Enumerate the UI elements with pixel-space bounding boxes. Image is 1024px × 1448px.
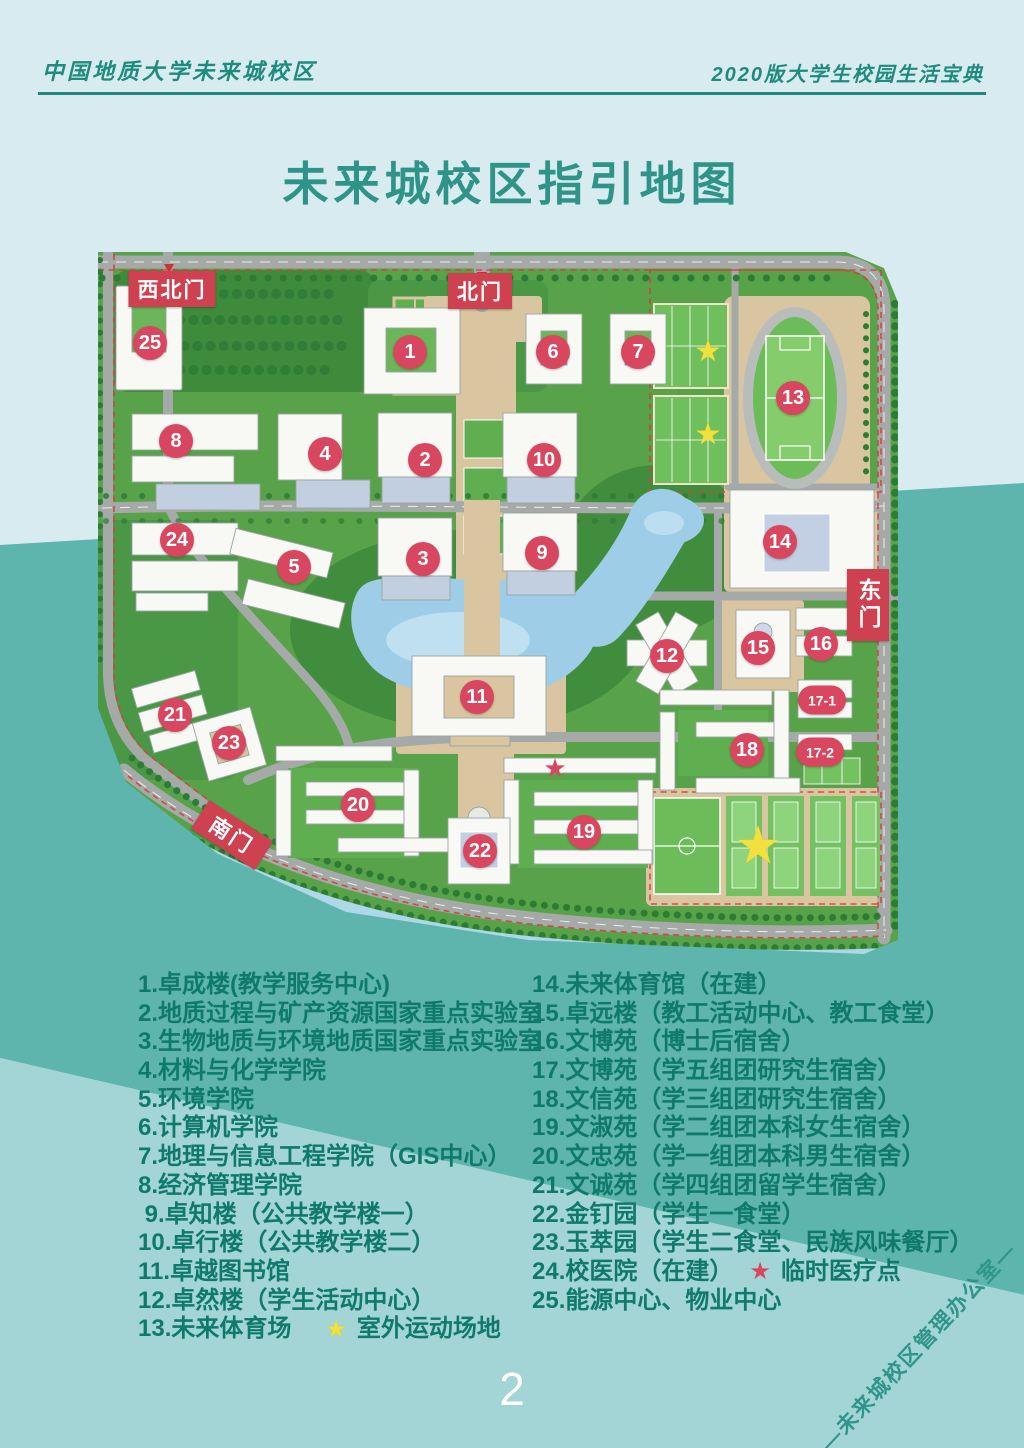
- legend-item-left-9: 10.卓行楼（公共教学楼二）: [138, 1229, 542, 1258]
- legend-item-right-9: 23.玉萃园（学生二食堂、民族风味餐厅）: [532, 1229, 973, 1258]
- legend-item-text: 24.校医院（在建）: [532, 1258, 733, 1287]
- legend-item-left-11: 12.卓然楼（学生活动中心）: [138, 1287, 542, 1316]
- map-marker-22: 22: [463, 834, 497, 868]
- legend-column-left: 1.卓成楼(教学服务中心)2.地质过程与矿产资源国家重点实验室3.生物地质与环境…: [138, 971, 542, 1344]
- legend-item-right-3: 17.文博苑（学五组团研究生宿舍）: [532, 1057, 973, 1086]
- yellow-star-icon: ★: [695, 337, 722, 367]
- legend-item-text: 21.文诚苑（学四组团留学生宿舍）: [532, 1172, 901, 1201]
- map-marker-9: 9: [525, 536, 559, 570]
- legend-item-text: 2.地质过程与矿产资源国家重点实验室: [138, 1000, 542, 1029]
- map-marker-3: 3: [406, 542, 440, 576]
- legend-item-left-8: 9.卓知楼（公共教学楼一）: [138, 1201, 542, 1230]
- legend-item-left-2: 3.生物地质与环境地质国家重点实验室: [138, 1028, 542, 1057]
- legend-item-right-1: 15.卓远楼（教工活动中心、教工食堂）: [532, 1000, 973, 1029]
- map-marker-23: 23: [212, 726, 246, 760]
- gate-label-east: 东门: [847, 569, 889, 641]
- legend-item-right-5: 19.文淑苑（学二组团本科女生宿舍）: [532, 1114, 973, 1143]
- header-campus-name: 中国地质大学未来城校区: [42, 54, 317, 86]
- legend-item-text: 19.文淑苑（学二组团本科女生宿舍）: [532, 1114, 925, 1143]
- legend-item-text: 4.材料与化学学院: [138, 1057, 326, 1086]
- legend-item-text: 18.文信苑（学三组团研究生宿舍）: [532, 1086, 901, 1115]
- legend-item-right-8: 22.金钉园（学生一食堂）: [532, 1201, 973, 1230]
- yellow-star-icon: ★: [735, 820, 782, 872]
- legend-item-suffix: 室外运动场地: [357, 1315, 501, 1344]
- red-star-icon: ★: [543, 755, 566, 781]
- red-star-icon: ★: [749, 1260, 771, 1284]
- map-marker-10: 10: [527, 443, 561, 477]
- legend-item-left-4: 5.环境学院: [138, 1086, 542, 1115]
- legend-item-text: 3.生物地质与环境地质国家重点实验室: [138, 1028, 542, 1057]
- legend-item-text: 14.未来体育馆（在建）: [532, 971, 781, 1000]
- gate-label-north: 北门: [448, 273, 512, 309]
- legend-item-left-10: 11.卓越图书馆: [138, 1258, 542, 1287]
- map-marker-6: 6: [536, 335, 570, 369]
- map-marker-17-1: 17-1: [798, 686, 846, 715]
- map-marker-20: 20: [341, 788, 375, 822]
- map-marker-21: 21: [158, 698, 192, 732]
- legend-item-left-12: 13.未来体育场★室外运动场地: [138, 1315, 542, 1344]
- map-marker-8: 8: [159, 424, 193, 458]
- header-handbook-name: 2020版大学生校园生活宝典: [712, 58, 985, 87]
- header-divider: [38, 92, 986, 95]
- map-marker-1: 1: [393, 335, 427, 369]
- legend-item-right-2: 16.文博苑（博士后宿舍）: [532, 1028, 973, 1057]
- legend-item-left-5: 6.计算机学院: [138, 1114, 542, 1143]
- map-marker-24: 24: [160, 523, 194, 557]
- legend-item-text: 5.环境学院: [138, 1086, 254, 1115]
- map-marker-2: 2: [408, 443, 442, 477]
- map-marker-17-2: 17-2: [796, 738, 844, 767]
- legend-item-text: 16.文博苑（博士后宿舍）: [532, 1028, 805, 1057]
- legend-item-text: 17.文博苑（学五组团研究生宿舍）: [532, 1057, 901, 1086]
- map-marker-15: 15: [741, 631, 775, 665]
- legend-item-text: 10.卓行楼（公共教学楼二）: [138, 1229, 435, 1258]
- legend-item-text: 23.玉萃园（学生二食堂、民族风味餐厅）: [532, 1229, 973, 1258]
- page-title: 未来城校区指引地图: [0, 148, 1024, 214]
- legend-item-text: 25.能源中心、物业中心: [532, 1287, 781, 1316]
- legend-item-left-7: 8.经济管理学院: [138, 1172, 542, 1201]
- map-marker-25: 25: [133, 326, 167, 360]
- legend-item-left-1: 2.地质过程与矿产资源国家重点实验室: [138, 1000, 542, 1029]
- map-marker-14: 14: [763, 525, 797, 559]
- map-marker-12: 12: [650, 639, 684, 673]
- legend-item-text: 1.卓成楼(教学服务中心): [138, 971, 390, 1000]
- legend-item-text: 20.文忠苑（学一组团本科男生宿舍）: [532, 1143, 925, 1172]
- legend-item-right-7: 21.文诚苑（学四组团留学生宿舍）: [532, 1172, 973, 1201]
- legend-item-text: 22.金钉园（学生一食堂）: [532, 1201, 805, 1230]
- guidebook-page: 中国地质大学未来城校区 2020版大学生校园生活宝典 未来城校区指引地图: [0, 0, 1024, 1448]
- map-marker-13: 13: [776, 381, 810, 415]
- legend-item-text: 8.经济管理学院: [138, 1172, 302, 1201]
- legend-item-suffix: 临时医疗点: [781, 1258, 901, 1287]
- legend-item-text: 7.地理与信息工程学院（GIS中心）: [138, 1143, 511, 1172]
- map-marker-7: 7: [621, 335, 655, 369]
- legend-item-right-4: 18.文信苑（学三组团研究生宿舍）: [532, 1086, 973, 1115]
- map-marker-11: 11: [460, 680, 494, 714]
- map-marker-4: 4: [308, 437, 342, 471]
- legend-item-right-0: 14.未来体育馆（在建）: [532, 971, 973, 1000]
- legend-item-right-10: 24.校医院（在建）★临时医疗点: [532, 1258, 973, 1287]
- legend-item-right-6: 20.文忠苑（学一组团本科男生宿舍）: [532, 1143, 973, 1172]
- legend-item-left-6: 7.地理与信息工程学院（GIS中心）: [138, 1143, 542, 1172]
- yellow-star-icon: ★: [325, 1318, 347, 1342]
- legend-item-text: 12.卓然楼（学生活动中心）: [138, 1287, 435, 1316]
- legend-item-text: 9.卓知楼（公共教学楼一）: [138, 1201, 429, 1230]
- legend-item-right-11: 25.能源中心、物业中心: [532, 1287, 973, 1316]
- map-marker-18: 18: [730, 733, 764, 767]
- map-marker-19: 19: [567, 815, 601, 849]
- legend-column-right: 14.未来体育馆（在建）15.卓远楼（教工活动中心、教工食堂）16.文博苑（博士…: [532, 971, 973, 1315]
- legend-item-text: 15.卓远楼（教工活动中心、教工食堂）: [532, 1000, 949, 1029]
- map-marker-16: 16: [804, 627, 838, 661]
- gate-label-northwest: 西北门: [129, 271, 216, 307]
- map-marker-5: 5: [277, 550, 311, 584]
- legend-item-left-0: 1.卓成楼(教学服务中心): [138, 971, 542, 1000]
- legend-item-left-3: 4.材料与化学学院: [138, 1057, 542, 1086]
- legend-item-text: 13.未来体育场: [138, 1315, 291, 1344]
- legend-item-text: 6.计算机学院: [138, 1114, 278, 1143]
- legend-item-text: 11.卓越图书馆: [138, 1258, 290, 1287]
- yellow-star-icon: ★: [695, 420, 722, 450]
